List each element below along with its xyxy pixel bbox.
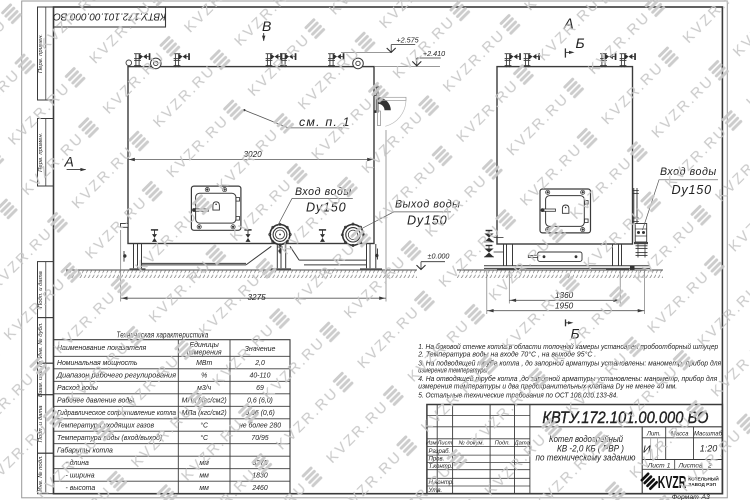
svg-text:°С: °С xyxy=(200,422,209,430)
svg-text:2,0: 2,0 xyxy=(254,360,265,367)
svg-text:мм: мм xyxy=(199,485,209,492)
svg-text:мм: мм xyxy=(199,473,209,480)
svg-text:Формат: Формат xyxy=(672,494,699,500)
svg-text:Изм.: Изм. xyxy=(426,440,438,446)
svg-text:Разраб.: Разраб. xyxy=(429,449,451,455)
svg-text:°С: °С xyxy=(200,434,209,442)
svg-text:Б: Б xyxy=(576,35,585,51)
svg-text:Лист: Лист xyxy=(436,440,452,446)
svg-text:Инв. № дубл.: Инв. № дубл. xyxy=(37,322,44,358)
svg-text:1: 1 xyxy=(667,463,671,470)
svg-text:±0.000: ±0.000 xyxy=(428,252,450,261)
svg-text:Подп.: Подп. xyxy=(495,440,510,446)
svg-text:Единицы: Единицы xyxy=(189,341,219,349)
svg-text:70/95: 70/95 xyxy=(251,435,268,442)
svg-text:А3: А3 xyxy=(701,494,711,500)
svg-text:Пров.: Пров. xyxy=(429,456,445,462)
svg-text:%: % xyxy=(201,373,207,380)
svg-text:Масштаб: Масштаб xyxy=(694,431,723,437)
svg-text:МВт: МВт xyxy=(196,360,212,367)
svg-text:- высота: - высота xyxy=(66,485,96,492)
svg-text:2460: 2460 xyxy=(251,485,267,492)
svg-text:40-110: 40-110 xyxy=(250,373,271,380)
svg-text:м3/ч: м3/ч xyxy=(197,385,211,392)
